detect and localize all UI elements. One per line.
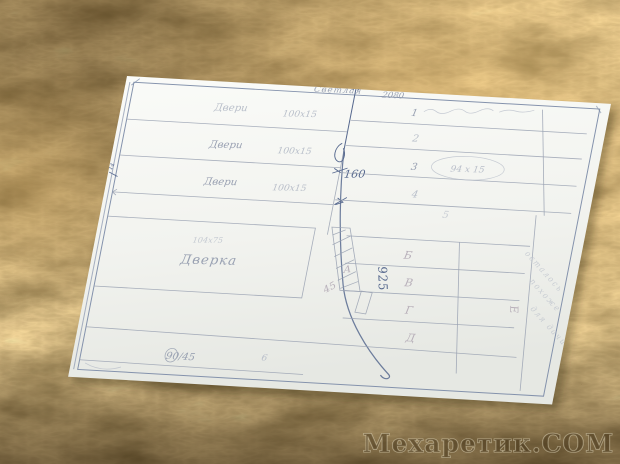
door-box-note: 104х75 — [192, 236, 224, 245]
row-label: Двери — [202, 177, 238, 189]
dim-long: 925 — [375, 265, 390, 292]
oval-label: 94 х 15 — [450, 165, 486, 176]
paper-sheet — [68, 76, 611, 405]
row-size: 100х15 — [282, 110, 318, 121]
watermark: Мехаретик.СОМ — [363, 429, 614, 458]
corner-letter-a: А — [342, 264, 351, 276]
header-dimension: 2080 — [380, 91, 405, 102]
side-letter-e: Е — [507, 304, 520, 314]
row-label: Двери — [213, 103, 249, 115]
photo-of-sketch: Светлая 2080 160 925 Двери 100х15 — [0, 0, 620, 464]
value-90-45: 90/45 — [165, 351, 196, 363]
row-label: Двери — [207, 140, 243, 152]
row-size: 100х15 — [277, 146, 313, 157]
row-size: 100х15 — [271, 183, 307, 194]
door-box-label: Дверка — [178, 253, 238, 269]
